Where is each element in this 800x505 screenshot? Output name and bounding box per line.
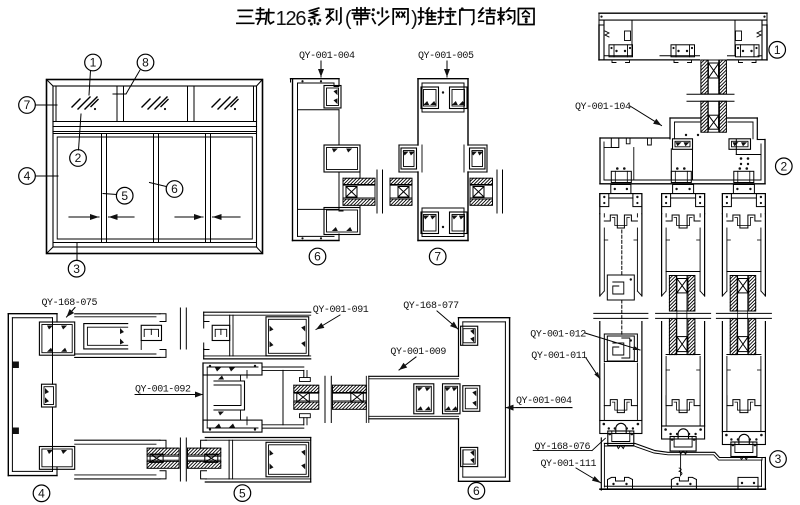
- svg-text:1: 1: [90, 56, 97, 70]
- svg-text:3: 3: [73, 262, 80, 276]
- svg-text:(: (: [345, 8, 352, 30]
- svg-text:1: 1: [774, 43, 781, 57]
- svg-text:QY-168-077: QY-168-077: [403, 301, 459, 312]
- svg-text:QY-168-076: QY-168-076: [535, 442, 591, 453]
- svg-text:QY-001-009: QY-001-009: [390, 347, 446, 358]
- svg-text:2: 2: [780, 160, 787, 174]
- svg-text:QY-001-004: QY-001-004: [516, 396, 572, 407]
- svg-text:QY-001-092: QY-001-092: [135, 385, 191, 396]
- svg-text:QY-001-104: QY-001-104: [575, 102, 631, 113]
- svg-text:6: 6: [295, 8, 306, 30]
- svg-text:6: 6: [314, 250, 321, 264]
- svg-text:QY-001-011: QY-001-011: [531, 351, 587, 362]
- svg-text:7: 7: [24, 98, 31, 112]
- svg-text:4: 4: [24, 169, 31, 183]
- svg-text:3: 3: [775, 452, 782, 466]
- svg-text:2: 2: [75, 151, 82, 165]
- svg-text:8: 8: [142, 56, 149, 70]
- svg-text:): ): [411, 8, 418, 30]
- svg-text:5: 5: [121, 189, 128, 203]
- svg-text:QY-001-111: QY-001-111: [541, 459, 597, 470]
- svg-text:QY-001-012: QY-001-012: [530, 330, 586, 341]
- svg-text:QY-168-075: QY-168-075: [42, 298, 98, 309]
- svg-text:QY-001-091: QY-001-091: [313, 305, 369, 316]
- svg-text:6: 6: [171, 182, 178, 196]
- svg-text:6: 6: [473, 484, 480, 498]
- svg-text:7: 7: [434, 250, 441, 264]
- svg-text:4: 4: [38, 487, 45, 501]
- svg-text:5: 5: [239, 486, 246, 500]
- svg-text:QY-001-004: QY-001-004: [299, 51, 355, 62]
- svg-text:QY-001-005: QY-001-005: [418, 51, 474, 62]
